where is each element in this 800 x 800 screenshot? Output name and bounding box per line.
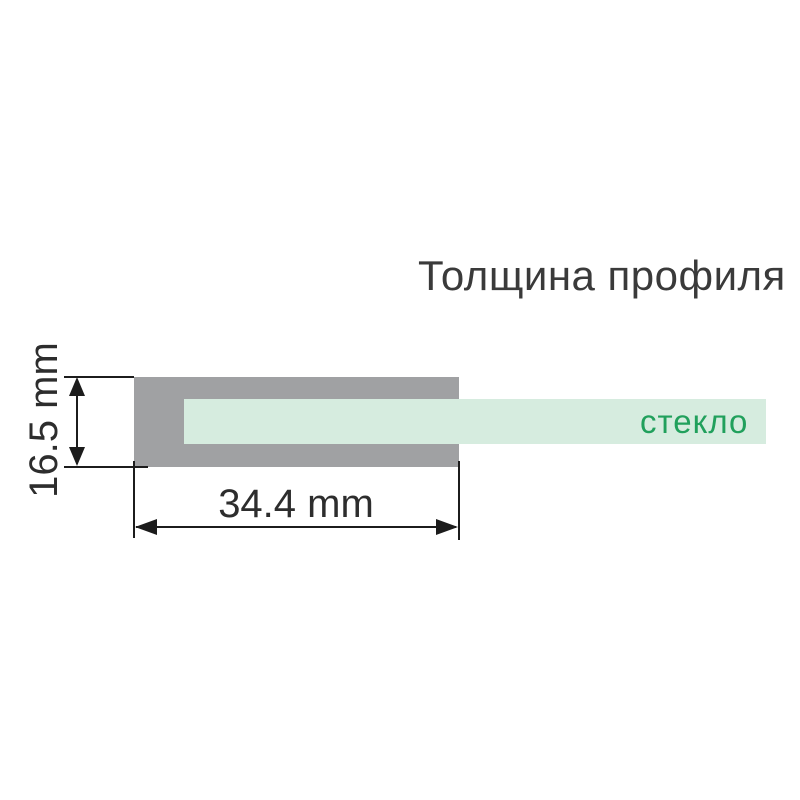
diagram-canvas: Толщина профиля стекло 16.5 mm 34.4 mm: [0, 0, 800, 800]
width-dim-extension-line-right: [458, 461, 460, 540]
arrow-down-icon: [69, 447, 85, 466]
height-dim-extension-line-bottom: [64, 466, 148, 468]
arrow-up-icon: [69, 377, 85, 396]
height-dim-label: 16.5 mm: [23, 335, 65, 505]
diagram-title: Толщина профиля: [418, 252, 786, 300]
glass-label: стекло: [640, 399, 760, 444]
width-dim-label: 34.4 mm: [134, 482, 458, 527]
